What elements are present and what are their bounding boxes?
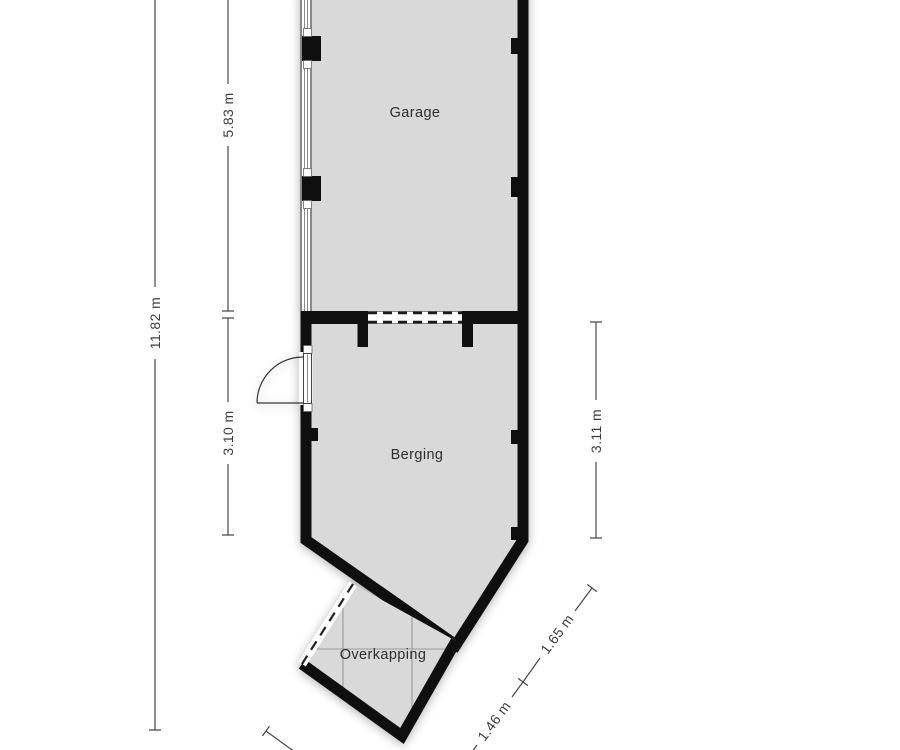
dimension-overkapping-diagonal: 1.46 m: [464, 682, 523, 750]
dimension-label: 5.83 m: [220, 92, 236, 137]
dimension-partial-bottom-left: [263, 726, 304, 750]
wall-pillar: [302, 176, 321, 201]
room-label-overkapping: Overkapping: [340, 647, 427, 663]
wall-stub: [462, 324, 473, 347]
dimension-berging-right: 3.11 m: [588, 322, 604, 538]
window-frame-cap: [304, 61, 312, 69]
dimension-garage-left: 5.83 m: [220, 0, 236, 311]
room-label-berging: Berging: [391, 447, 444, 463]
wall-pillar: [511, 527, 521, 540]
window-frame-cap: [304, 201, 312, 209]
wall-pillar: [511, 38, 521, 54]
wall-pillar: [302, 36, 321, 61]
dimension-label: 11.82 m: [147, 297, 163, 349]
floorplan-canvas: Garage Berging Overkapping 11.82 m 5.83 …: [0, 0, 900, 750]
dimension-label: 1.46 m: [474, 698, 514, 744]
door-frame-cap: [304, 346, 313, 354]
wall-pillar: [312, 428, 319, 441]
door: [257, 346, 313, 412]
dimension-label: 1.65 m: [537, 611, 577, 657]
room-label-garage: Garage: [390, 105, 441, 121]
wall-stub: [358, 324, 369, 347]
dimension-label: 3.10 m: [220, 410, 236, 455]
window-frame-cap: [304, 169, 312, 177]
wall-pillar: [511, 430, 521, 444]
dimension-berging-diagonal: 1.65 m: [518, 584, 597, 685]
window-frame-cap: [304, 29, 312, 37]
dimension-label: 3.11 m: [588, 409, 604, 453]
wall-pillar: [511, 177, 521, 197]
dimension-berging-left: 3.10 m: [220, 318, 236, 535]
dimension-total-left: 11.82 m: [147, 0, 163, 730]
door-swing-arc-icon: [257, 357, 304, 403]
door-frame-cap: [304, 404, 313, 412]
